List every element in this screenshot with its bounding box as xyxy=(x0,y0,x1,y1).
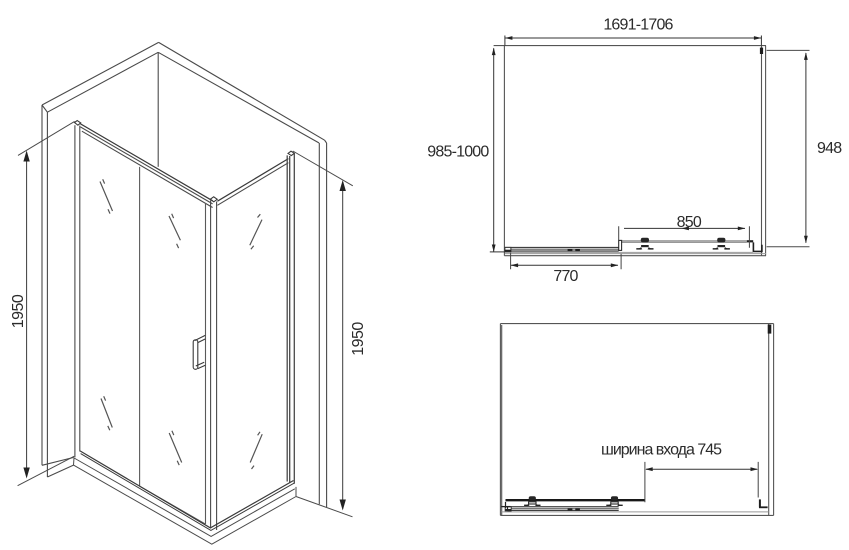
svg-text:985-1000: 985-1000 xyxy=(427,143,489,160)
svg-text:850: 850 xyxy=(677,214,702,231)
svg-text:1950: 1950 xyxy=(350,322,367,356)
svg-text:770: 770 xyxy=(553,268,578,285)
svg-text:ширина входа 745: ширина входа 745 xyxy=(601,442,722,459)
svg-text:948: 948 xyxy=(817,140,842,157)
svg-text:1950: 1950 xyxy=(10,294,27,328)
svg-text:1691-1706: 1691-1706 xyxy=(603,17,673,34)
